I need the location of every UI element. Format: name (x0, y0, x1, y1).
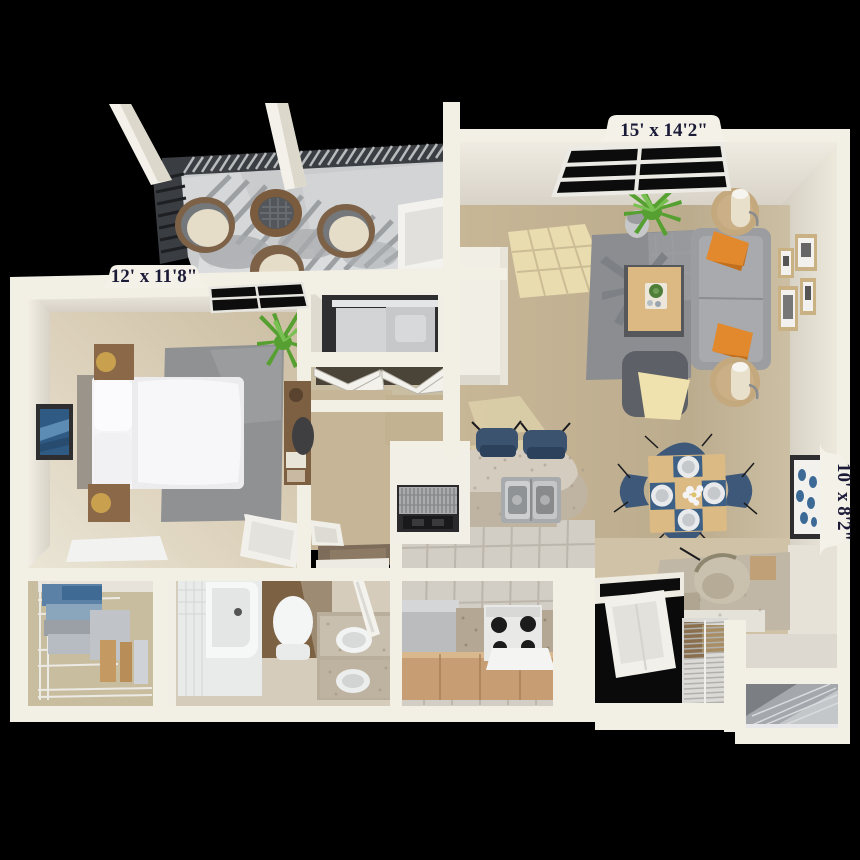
svg-text:12' x 11'8": 12' x 11'8" (111, 266, 198, 287)
svg-text:10' x 8'2": 10' x 8'2" (833, 463, 854, 541)
svg-text:15' x 14'2": 15' x 14'2" (620, 120, 708, 141)
